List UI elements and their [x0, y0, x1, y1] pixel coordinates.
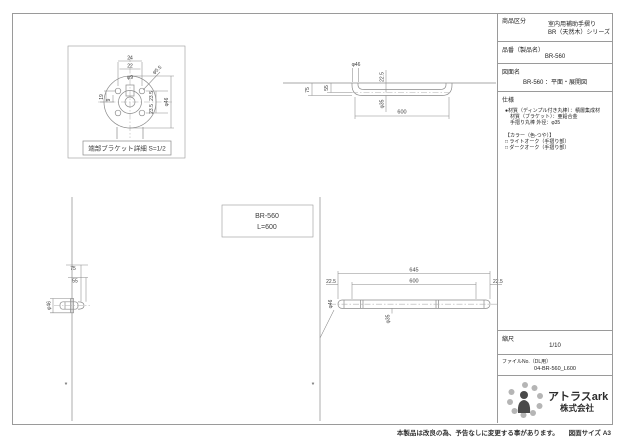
spec-line: 手摺り丸棒 外径：φ35	[505, 120, 600, 126]
plan-dim-rail-dia: φ35	[380, 99, 386, 108]
field-drawing-name: 図面名 BR-560 ：平面・展開図	[498, 64, 612, 92]
file-no-value: 04-BR-560_L600	[498, 366, 612, 372]
product-category-label: 商品区分	[502, 16, 526, 25]
plan-dim-proj-outer: 75	[305, 87, 311, 93]
footer-note: 本製品は改良の為、予告なしに変更する事があります。 図面サイズ A3	[389, 427, 611, 437]
file-no-label: ファイルNo.（DL用）	[502, 358, 551, 365]
detail-dim-left-lower: 9	[106, 98, 112, 101]
side-dim-flange: φ46	[47, 301, 53, 310]
reference-asterisk: *	[65, 382, 68, 389]
detail-dim-right-upper: 23.5	[149, 91, 155, 101]
plan-dim-lines	[308, 68, 449, 119]
part-no-label: 品番（製品名）	[502, 45, 544, 54]
elev-dim-overall: 645	[409, 268, 418, 274]
detail-dim-hole: φ9	[127, 75, 133, 81]
detail-dim-left-upper: 19	[99, 94, 105, 100]
detail-dim-lines	[100, 61, 174, 128]
footer-note-text: 本製品は改良の為、予告なしに変更する事があります。	[397, 430, 559, 437]
reference-asterisk: *	[312, 382, 315, 389]
field-file-no: ファイルNo.（DL用） 04-BR-560_L600	[498, 355, 612, 376]
elev-dim-rail-dia: φ35	[386, 314, 392, 323]
detail-dim-22: 22	[127, 64, 133, 70]
title-block: 商品区分 室内用補助手摺り BR（天然木）シリーズ 品番（製品名） BR-560…	[497, 13, 612, 423]
drawing-name-label: 図面名	[502, 67, 520, 76]
end-bracket-detail-view: 24 22 φ9 φ5.5 19 9 23.5 23.5 φ46 端部ブラケット…	[68, 46, 185, 158]
elev-dim-end-dia: φ46	[328, 299, 334, 308]
model-label-box	[222, 205, 313, 237]
spec-text: ●材質（ディンプル付き丸棒）：積層集成材 材質（ブラケット）：亜鉛合金 手摺り丸…	[505, 108, 600, 151]
scale-value: 1/10	[498, 343, 612, 349]
detail-dim-screw: φ5.5	[152, 65, 164, 76]
drawing-sheet: 24 22 φ9 φ5.5 19 9 23.5 23.5 φ46 端部ブラケット…	[0, 0, 624, 442]
leader-line	[320, 310, 334, 338]
screw-hole	[139, 110, 145, 116]
side-view: 75 55 φ46 *	[47, 197, 91, 421]
plan-dim-proj-inner: 55	[324, 85, 330, 91]
field-spec: 仕様 ●材質（ディンプル付き丸棒）：積層集成材 材質（ブラケット）：亜鉛合金 手…	[498, 92, 612, 331]
detail-caption: 端部ブラケット詳細 S=1/2	[88, 144, 166, 153]
drawing-name-value: BR-560 ：平面・展開図	[498, 77, 612, 86]
spec-line: □ ダークオーク（手摺り部）	[505, 145, 600, 151]
side-dim-proj-inner: 55	[72, 279, 78, 285]
plan-view: φ46 22.5 φ35 600 75 55	[283, 62, 496, 119]
model-length: L=600	[257, 224, 277, 231]
product-category-line2: BR（天然木）シリーズ	[548, 29, 610, 37]
logo-company-suffix: 株式会社	[560, 402, 594, 414]
logo-gear-icon	[502, 377, 548, 423]
field-product-category: 商品区分 室内用補助手摺り BR（天然木）シリーズ	[498, 13, 612, 42]
detail-dim-flange: φ46	[164, 97, 170, 106]
product-category-value: 室内用補助手摺り BR（天然木）シリーズ	[548, 21, 610, 37]
plan-dim-offset: 22.5	[380, 72, 386, 82]
side-dim-proj-outer: 75	[70, 266, 76, 272]
field-part-no: 品番（製品名） BR-560	[498, 42, 612, 64]
model-name: BR-560	[255, 213, 279, 220]
screw-hole	[115, 110, 121, 116]
elevation-view: 645 600 22.5 22.5 φ46 φ35 *	[312, 197, 503, 421]
detail-dim-right-lower: 23.5	[149, 104, 155, 114]
plan-dim-length: 600	[397, 110, 406, 116]
plan-dim-end-dia: φ46	[352, 62, 361, 68]
paper-size-note: 図面サイズ A3	[569, 430, 611, 437]
detail-dim-24: 24	[127, 56, 133, 62]
model-label: BR-560 L=600	[222, 205, 313, 237]
field-scale: 縮尺 1/10	[498, 331, 612, 355]
elev-dim-length: 600	[409, 279, 418, 285]
company-logo: アトラスark 株式会社	[498, 376, 612, 423]
elev-dim-end-left: 22.5	[326, 279, 336, 285]
scale-label: 縮尺	[502, 334, 514, 343]
spec-label: 仕様	[502, 95, 514, 104]
part-no-value: BR-560	[498, 54, 612, 60]
screw-hole	[115, 88, 121, 94]
rail-inner	[358, 83, 446, 90]
elevation-dim-lines	[326, 271, 502, 314]
product-category-line1: 室内用補助手摺り	[548, 21, 610, 29]
